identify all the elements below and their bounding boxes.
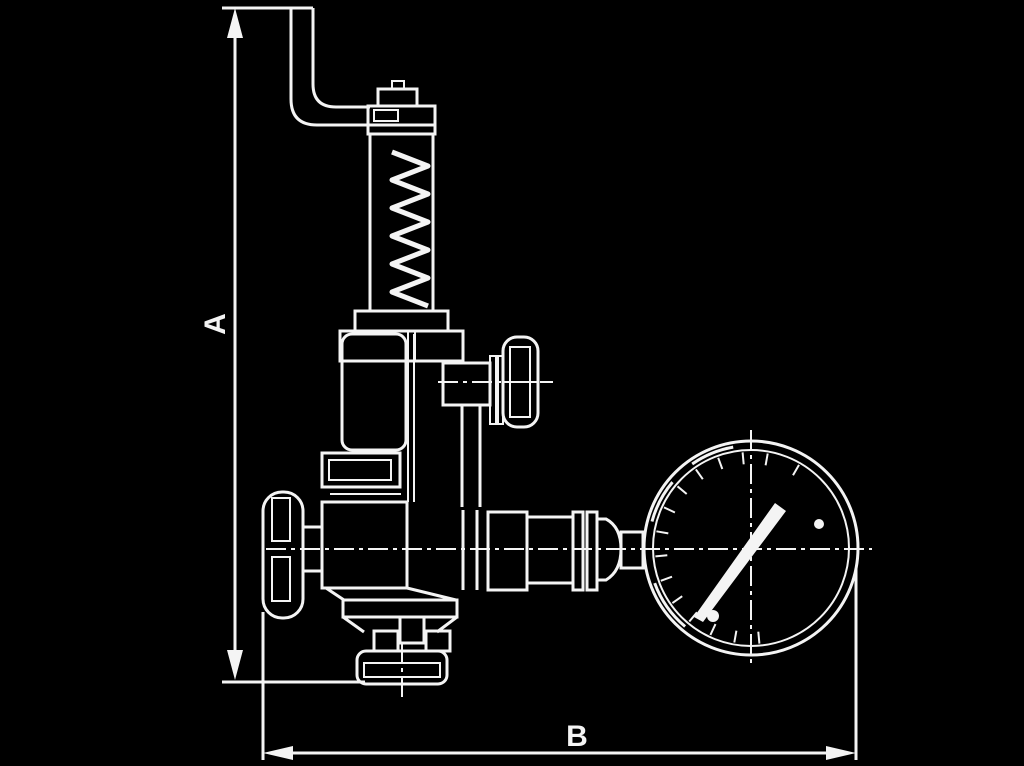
stem-cap bbox=[368, 81, 435, 134]
gauge-tick bbox=[655, 555, 667, 556]
gauge-tick bbox=[656, 531, 668, 533]
gauge-tick bbox=[664, 507, 675, 512]
gauge-tick bbox=[734, 631, 736, 643]
gauge-tick bbox=[672, 596, 682, 603]
arrow-up-icon bbox=[227, 8, 243, 38]
dimension-b: B bbox=[263, 568, 856, 760]
lifting-lever bbox=[291, 8, 370, 125]
gauge-tick bbox=[678, 486, 687, 494]
valve-body bbox=[322, 453, 457, 651]
arrow-down-icon bbox=[227, 650, 243, 680]
gauge-tick bbox=[793, 465, 799, 475]
spring-housing-lower bbox=[342, 334, 414, 502]
gauge-scale-arcs bbox=[652, 447, 733, 626]
body-flange-box-detail bbox=[329, 460, 391, 480]
gauge-face-dot bbox=[814, 519, 824, 529]
dimension-b-label: B bbox=[566, 720, 588, 753]
inlet-knob-detail bbox=[272, 557, 290, 601]
connection-block bbox=[488, 512, 527, 590]
arrow-left-icon bbox=[263, 746, 293, 760]
union-flange-bar bbox=[573, 512, 583, 590]
gauge-tick bbox=[718, 458, 722, 469]
outlet-stub-left bbox=[374, 631, 398, 651]
inlet-knob bbox=[263, 492, 322, 618]
spring-bonnet bbox=[340, 134, 463, 361]
arrow-right-icon bbox=[826, 746, 856, 760]
gauge-tick bbox=[766, 454, 768, 466]
dimension-a-label: A bbox=[199, 313, 232, 335]
bonnet-flange-upper bbox=[355, 311, 448, 331]
body-flange-box bbox=[322, 453, 400, 487]
gauge-needle bbox=[694, 503, 786, 622]
housing-shell bbox=[342, 334, 406, 450]
gauge-tick bbox=[743, 452, 744, 464]
inlet-knob-detail bbox=[272, 498, 290, 541]
gauge-face-dot bbox=[707, 610, 719, 622]
spring-coil bbox=[392, 152, 428, 306]
port-tube bbox=[443, 363, 490, 405]
outlet-stub-right bbox=[426, 631, 450, 651]
gauge-tick bbox=[710, 624, 715, 635]
valve-dimension-drawing: A bbox=[0, 0, 1024, 766]
body-block bbox=[322, 502, 407, 588]
gauge-tick bbox=[758, 632, 759, 644]
adjuster-band bbox=[368, 106, 435, 125]
body-foot-band bbox=[343, 600, 457, 617]
port-flange-bar bbox=[490, 356, 496, 424]
lever-inner-edge bbox=[313, 8, 370, 107]
outlet-stub-center bbox=[400, 617, 424, 643]
gauge-tick bbox=[661, 577, 672, 581]
body-converge-line bbox=[343, 617, 364, 632]
adjuster-detail bbox=[374, 110, 398, 121]
body-skirt-line bbox=[326, 588, 344, 600]
cap-nut bbox=[378, 89, 417, 106]
body-skirt-line bbox=[407, 588, 456, 600]
gauge-tick bbox=[696, 469, 703, 479]
bottom-flange bbox=[357, 643, 447, 699]
inlet-knob-shell bbox=[263, 492, 303, 618]
test-port bbox=[438, 337, 553, 507]
